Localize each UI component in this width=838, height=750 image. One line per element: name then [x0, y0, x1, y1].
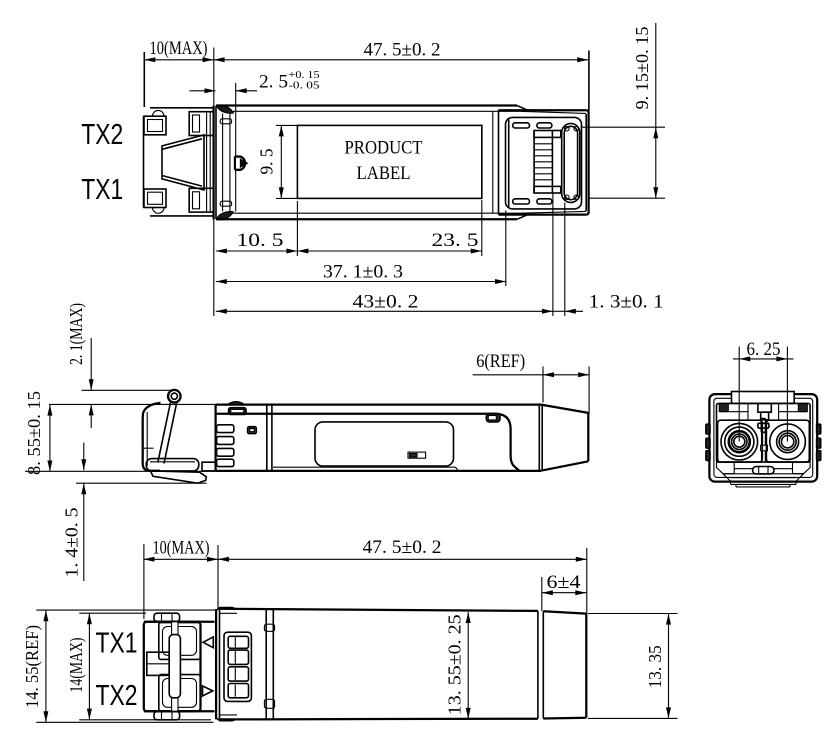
svg-text:TX2: TX2 [81, 119, 123, 151]
svg-text:TX1: TX1 [96, 627, 138, 659]
svg-text:6. 25: 6. 25 [747, 339, 781, 360]
svg-text:9. 15±0. 15: 9. 15±0. 15 [632, 27, 652, 110]
svg-text:2. 5: 2. 5 [259, 72, 288, 93]
svg-text:10(MAX): 10(MAX) [150, 38, 208, 59]
svg-text:1. 3±0. 1: 1. 3±0. 1 [589, 292, 664, 313]
svg-text:14(MAX): 14(MAX) [66, 638, 87, 693]
svg-text:47. 5±0. 2: 47. 5±0. 2 [363, 537, 442, 558]
svg-text:37. 1±0. 3: 37. 1±0. 3 [323, 262, 403, 283]
svg-text:8. 55±0. 15: 8. 55±0. 15 [24, 391, 44, 475]
svg-text:TX1: TX1 [81, 174, 123, 206]
svg-text:9. 5: 9. 5 [256, 149, 276, 175]
svg-text:PRODUCT: PRODUCT [345, 138, 423, 159]
svg-text:6±4: 6±4 [547, 572, 582, 593]
svg-text:13. 35: 13. 35 [645, 645, 665, 688]
svg-text:1. 4±0. 5: 1. 4±0. 5 [62, 508, 82, 578]
svg-text:LABEL: LABEL [357, 163, 411, 184]
svg-text:23. 5: 23. 5 [432, 230, 479, 251]
svg-text:6(REF): 6(REF) [476, 351, 525, 372]
svg-text:14. 55(REF): 14. 55(REF) [22, 625, 43, 708]
svg-text:13. 55±0. 25: 13. 55±0. 25 [444, 614, 464, 715]
svg-text:-0. 05: -0. 05 [289, 80, 321, 92]
svg-text:10. 5: 10. 5 [237, 230, 284, 251]
svg-text:TX2: TX2 [96, 680, 138, 712]
svg-text:43±0. 2: 43±0. 2 [353, 292, 419, 313]
svg-text:10(MAX): 10(MAX) [153, 538, 210, 559]
svg-text:2. 1(MAX): 2. 1(MAX) [66, 303, 87, 365]
svg-text:47. 5±0. 2: 47. 5±0. 2 [364, 40, 441, 61]
